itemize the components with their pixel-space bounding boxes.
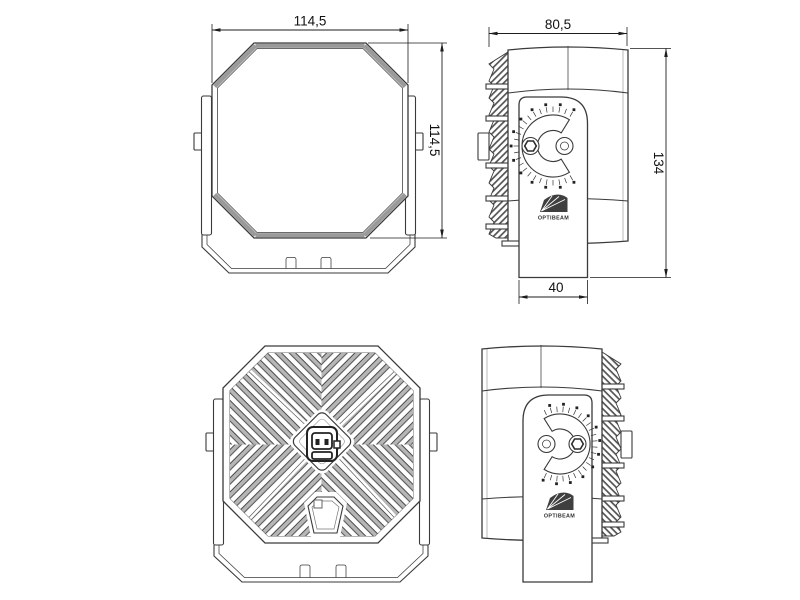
connector-pin [325,439,329,445]
rear-yoke-outer [214,545,428,582]
heatsink-fins [489,52,508,238]
side-knob [621,431,632,458]
rear-yoke-tab [336,565,346,578]
fin-plate [486,196,509,201]
heatsink-fins [602,352,621,536]
rear-yoke-inner [219,545,423,578]
fin-plate [486,163,509,168]
hex-bolt-icon [525,141,537,151]
fin-plate [486,84,509,89]
side-knob [478,133,489,160]
pivot-hole [538,436,555,453]
connector-latch [334,441,340,448]
connector-pin [316,439,320,445]
lamp-dimension-drawing: 114,5 114,5 [0,0,800,600]
view-front [194,43,423,273]
front-yoke-outer [202,233,415,273]
view-side-left: OPTIBEAM [482,345,632,582]
dim-side-depth: 80,5 [489,17,627,47]
dim-front-width-label: 114,5 [294,14,327,29]
hex-bolt-icon [572,439,584,449]
dim-bracket-width-label: 40 [548,280,563,295]
brand-name: OPTIBEAM [544,514,575,520]
fin-plate [601,384,624,389]
fin-plate [601,463,624,468]
dim-bracket-width: 40 [519,280,588,304]
fin-plate [486,224,509,229]
rear-bottom-pocket [304,492,347,537]
fin-plate [601,522,624,527]
brand-name: OPTIBEAM [538,216,569,222]
rear-left-bar [214,399,224,545]
pivot-hole [556,138,573,155]
rear-right-bar [420,399,430,545]
front-octagon-outer [212,43,408,238]
technical-drawing-canvas: 114,5 114,5 [0,0,800,600]
fin-plate [601,416,624,421]
front-left-bar [202,96,212,235]
fin-foot [502,241,521,246]
fin-plate [601,496,624,501]
rear-yoke-tab [300,565,310,578]
dim-front-height-label: 114,5 [427,124,442,157]
dim-side-height-label: 134 [651,152,666,175]
front-yoke-tab [286,258,296,269]
dim-side-depth-label: 80,5 [545,17,571,32]
fin-plate [486,116,509,121]
view-rear [206,346,437,582]
view-side-right: OPTIBEAM [478,46,628,278]
front-yoke-tab [321,258,331,269]
